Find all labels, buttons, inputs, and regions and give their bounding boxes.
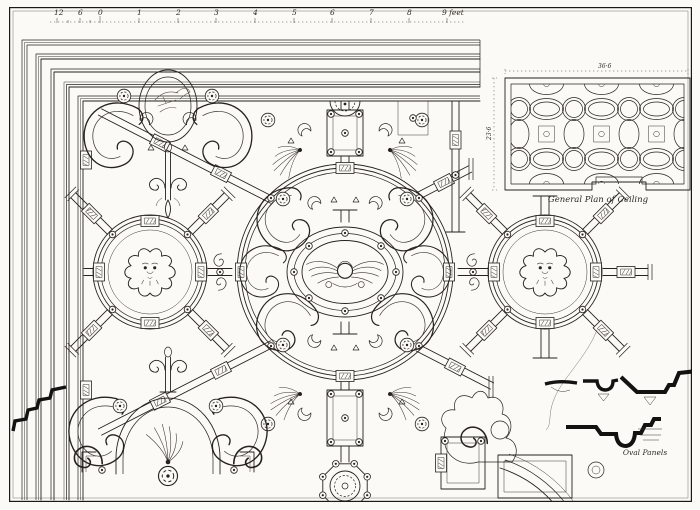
- top-panel: [327, 101, 363, 156]
- dimension-height-label: 23·6: [486, 126, 493, 141]
- dimension-line-width: [505, 69, 688, 74]
- link-ornament-left: [214, 254, 226, 290]
- lion-mask-right: [488, 215, 602, 329]
- scale-label-6in: 6: [78, 8, 83, 17]
- lion-mask-left: [93, 215, 207, 329]
- inset-pattern: [508, 74, 696, 195]
- flame-ornament: [146, 424, 183, 464]
- scale-label-9feet: 9 feet: [442, 8, 465, 17]
- bottom-right-partial: [436, 330, 605, 506]
- left-medallion: [93, 215, 207, 329]
- wall-profile-left: [13, 387, 66, 431]
- cherub-mask: [306, 261, 384, 287]
- inset-caption: General Plan of Ceiling: [548, 195, 649, 205]
- scale-label-8: 8: [407, 8, 412, 17]
- bottom-panel: [327, 390, 363, 446]
- sunflower-mask: [158, 466, 177, 485]
- bottom-left-arch-cartouche: [61, 347, 274, 486]
- central-cartouche: [236, 163, 455, 382]
- moulding-profile-oval-panels: Oval Panels: [566, 419, 667, 457]
- oval-panels-label: Oval Panels: [623, 448, 667, 457]
- pendant-husk-bottom-left: [150, 347, 187, 392]
- scale-label-4: 4: [252, 8, 258, 17]
- engraved-plate: 12 6 0 1 2 3 4 5 6 7 8 9 feet: [0, 0, 700, 510]
- inset-general-plan: 36·6 23·6 General Plan of Ceiling: [486, 63, 696, 205]
- right-medallion: [488, 215, 602, 329]
- helmet-oval: [139, 70, 197, 142]
- scale-label-5: 5: [292, 8, 297, 17]
- pendant-husk-top-left: [150, 142, 187, 218]
- link-ornament-right: [467, 254, 479, 290]
- scale-label-2: 2: [175, 8, 181, 17]
- right-vertical-band: [398, 101, 465, 232]
- scale-bar: 12 6 0 1 2 3 4 5 6 7 8 9 feet: [50, 8, 466, 23]
- helmet-mask: [155, 88, 190, 112]
- scale-label-3: 3: [214, 8, 219, 17]
- field-ornaments: [261, 113, 429, 431]
- dimension-width-label: 36·6: [598, 63, 612, 70]
- scale-label-12: 12: [54, 8, 64, 17]
- scale-label-6: 6: [330, 8, 335, 17]
- cornice-border: [22, 40, 480, 500]
- scale-label-7: 7: [369, 8, 374, 17]
- scale-label-0: 0: [98, 8, 103, 17]
- plate-svg: 12 6 0 1 2 3 4 5 6 7 8 9 feet: [0, 0, 700, 510]
- scale-label-1: 1: [137, 8, 142, 17]
